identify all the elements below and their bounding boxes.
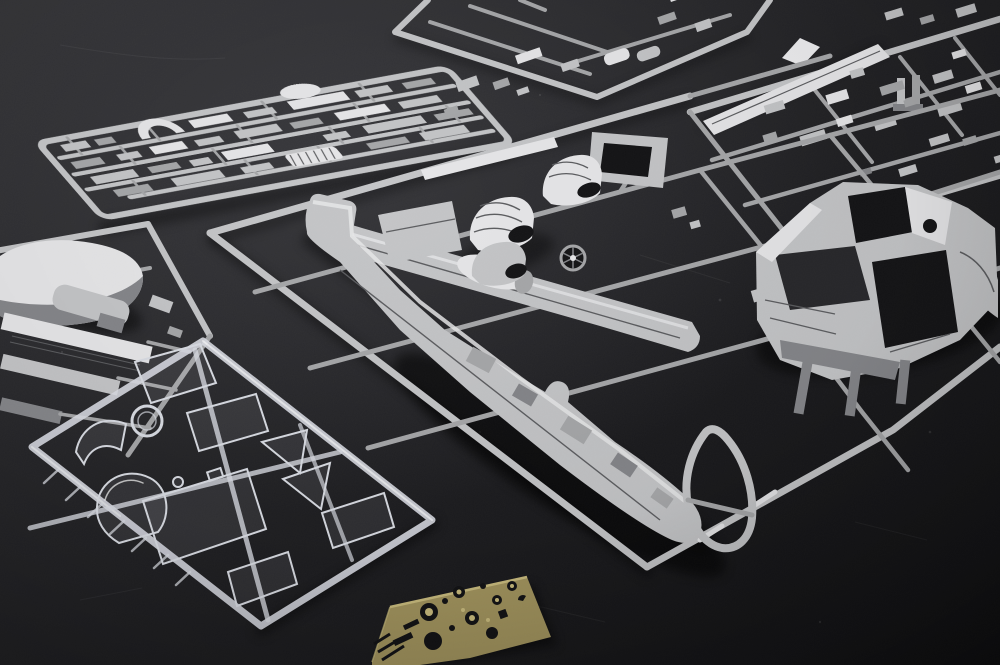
vignette — [0, 0, 1000, 665]
scene — [0, 0, 1000, 665]
model-kit-photograph — [0, 0, 1000, 665]
